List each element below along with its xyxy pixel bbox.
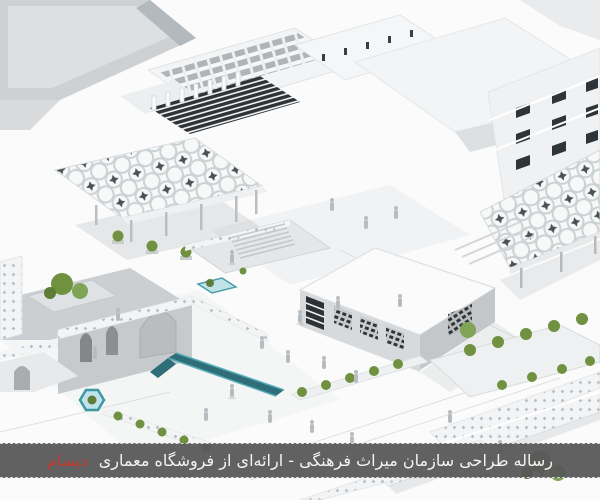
architectural-render-screenshot: رساله طراحی سازمان میراث فرهنگی - ارائه‌…: [0, 0, 600, 500]
fountain: [80, 390, 104, 410]
arch-opening: [106, 326, 118, 355]
caption-text: رساله طراحی سازمان میراث فرهنگی - ارائه‌…: [47, 451, 553, 470]
render-scene: [0, 0, 600, 500]
arch-opening: [80, 333, 92, 362]
caption-title: رساله طراحی سازمان میراث فرهنگی - ارائه‌…: [99, 451, 553, 470]
caption-bar: رساله طراحی سازمان میراث فرهنگی - ارائه‌…: [0, 443, 600, 478]
courtyard-pond: [198, 278, 236, 293]
brand-name: دیسام: [47, 451, 88, 470]
